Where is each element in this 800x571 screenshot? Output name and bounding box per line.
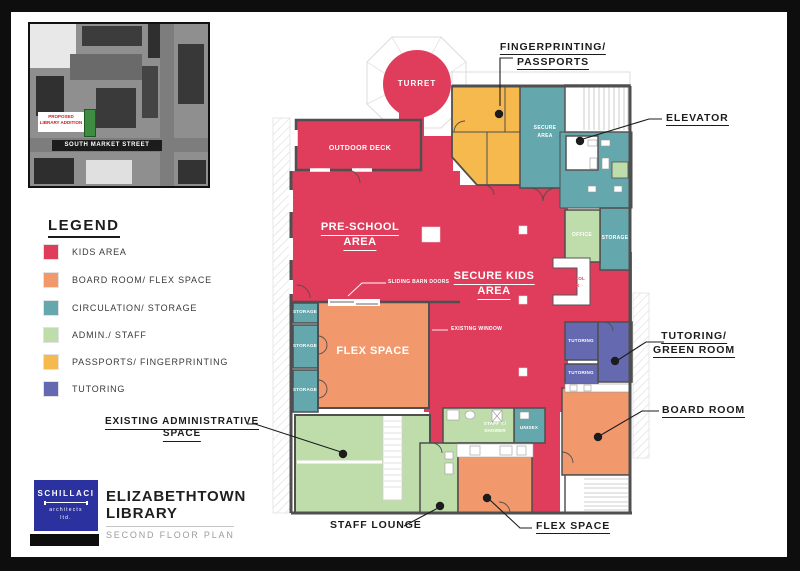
- map-building: [142, 66, 158, 118]
- logo-rule: [44, 502, 88, 503]
- project-title-line2: LIBRARY: [106, 506, 178, 522]
- legend-swatch-circulation: [43, 300, 59, 316]
- logo-firm-name: SCHILLACI: [34, 489, 98, 498]
- logo-firm-line2: architects: [34, 507, 98, 515]
- room-label-storage-3: STORAGE: [293, 388, 317, 393]
- room-label-staff-toilet-1: STAFF T./: [484, 422, 506, 427]
- room-label-secure-area-2: AREA: [537, 134, 552, 139]
- sheet-frame: PROPOSED LIBRARY ADDITION SOUTH MARKET S…: [0, 0, 800, 571]
- legend-swatch-board-flex: [43, 272, 59, 288]
- schillaci-logo: SCHILLACI architects ltd.: [34, 480, 98, 531]
- room-board-room-shape: [562, 388, 630, 475]
- callout-staff-lounge: STAFF LOUNGE: [330, 520, 422, 531]
- legend-label-passports: PASSPORTS/ FINGERPRINTING: [72, 358, 228, 367]
- legend-swatch-kids: [43, 244, 59, 260]
- map-parking-lot: [70, 54, 142, 80]
- room-label-unisex: UNISEX: [520, 426, 538, 431]
- room-existing-admin-shape: [295, 415, 430, 513]
- room-label-tutoring-b: TUTORING: [568, 371, 594, 376]
- room-label-turret: TURRET: [398, 80, 436, 88]
- room-label-storage-right: STORAGE: [602, 236, 629, 241]
- elevator-dot: [576, 137, 584, 145]
- room-label-tutoring-a: TUTORING: [568, 339, 594, 344]
- map-building: [178, 160, 206, 184]
- callout-sliding-barn-doors: SLIDING BARN DOORS: [388, 280, 449, 285]
- callout-fingerprinting-2: PASSPORTS: [517, 57, 589, 70]
- logo-firm-line3: ltd.: [34, 515, 98, 523]
- callout-tutoring-green-2: GREEN ROOM: [653, 345, 735, 358]
- staff-lounge-dot: [436, 502, 444, 510]
- map-road-vertical: [160, 24, 174, 186]
- room-label-office: OFFICE: [572, 233, 592, 238]
- titleblock-divider: [106, 526, 234, 527]
- map-street-label: SOUTH MARKET STREET: [52, 140, 162, 151]
- room-label-control-desk-1: CONTROL: [561, 277, 585, 282]
- logo-black-bar: [30, 534, 99, 546]
- room-label-secure-kids-2: AREA: [477, 286, 510, 300]
- map-building: [82, 26, 142, 46]
- callout-fingerprinting-1: FINGERPRINTING/: [500, 42, 606, 55]
- callout-tutoring-green-1: TUTORING/: [661, 331, 727, 344]
- map-proposed-addition-site: [84, 109, 96, 137]
- flex-space-dot: [483, 494, 491, 502]
- legend-swatch-passports: [43, 354, 59, 370]
- callout-flex-space: FLEX SPACE: [536, 521, 610, 534]
- room-fingerprinting-shape: [452, 86, 528, 185]
- map-building: [96, 88, 136, 128]
- map-building: [86, 160, 132, 184]
- map-proposed-addition-label: PROPOSED LIBRARY ADDITION: [38, 112, 84, 132]
- room-tutoring-green-shape: [598, 322, 632, 382]
- callout-elevator: ELEVATOR: [666, 113, 729, 126]
- callout-board-room: BOARD ROOM: [662, 405, 745, 418]
- room-label-storage-1: STORAGE: [293, 310, 317, 315]
- room-label-flex-space: FLEX SPACE: [336, 346, 409, 358]
- legend-label-board-flex: BOARD ROOM/ FLEX SPACE: [72, 276, 212, 285]
- project-title-line1: ELIZABETHTOWN: [106, 489, 246, 505]
- room-label-preschool-2: AREA: [343, 237, 376, 251]
- legend-label-admin: ADMIN./ STAFF: [72, 331, 147, 340]
- map-building: [34, 158, 74, 184]
- map-building: [178, 44, 204, 104]
- legend-swatch-admin: [43, 327, 59, 343]
- legend-swatch-tutoring: [43, 381, 59, 397]
- sliding-barn-doors-shape: [328, 299, 380, 306]
- fingerprinting-dot: [495, 110, 503, 118]
- board-room-dot: [594, 433, 602, 441]
- stair-bottom-shape: [565, 475, 630, 513]
- legend-label-circulation: CIRCULATION/ STORAGE: [72, 304, 197, 313]
- room-label-control-desk-2: DESK: [566, 284, 580, 289]
- site-aerial-map: PROPOSED LIBRARY ADDITION SOUTH MARKET S…: [28, 22, 210, 188]
- callout-existing-admin-2: SPACE: [163, 429, 201, 442]
- stair-top-shape: [565, 85, 630, 132]
- legend-label-tutoring: TUTORING: [72, 385, 125, 394]
- tutoring-green-dot: [611, 357, 619, 365]
- map-building: [36, 76, 64, 116]
- callout-existing-window: EXISTING WINDOW: [451, 327, 502, 332]
- hatch-left: [273, 118, 290, 513]
- room-label-outdoor-deck: OUTDOOR DECK: [329, 145, 391, 152]
- room-label-secure-kids-1: SECURE KIDS: [454, 271, 535, 285]
- room-label-staff-toilet-2: SHOWER: [484, 429, 506, 434]
- sheet-title: SECOND FLOOR PLAN: [106, 531, 235, 540]
- legend-title: LEGEND: [48, 218, 120, 238]
- legend-label-kids: KIDS AREA: [72, 248, 127, 257]
- room-label-storage-2: STORAGE: [293, 344, 317, 349]
- room-label-preschool-1: PRE-SCHOOL: [321, 222, 399, 236]
- hatch-right: [633, 293, 649, 458]
- existing-admin-dot: [339, 450, 347, 458]
- room-label-secure-area-1: SECURE: [534, 126, 557, 131]
